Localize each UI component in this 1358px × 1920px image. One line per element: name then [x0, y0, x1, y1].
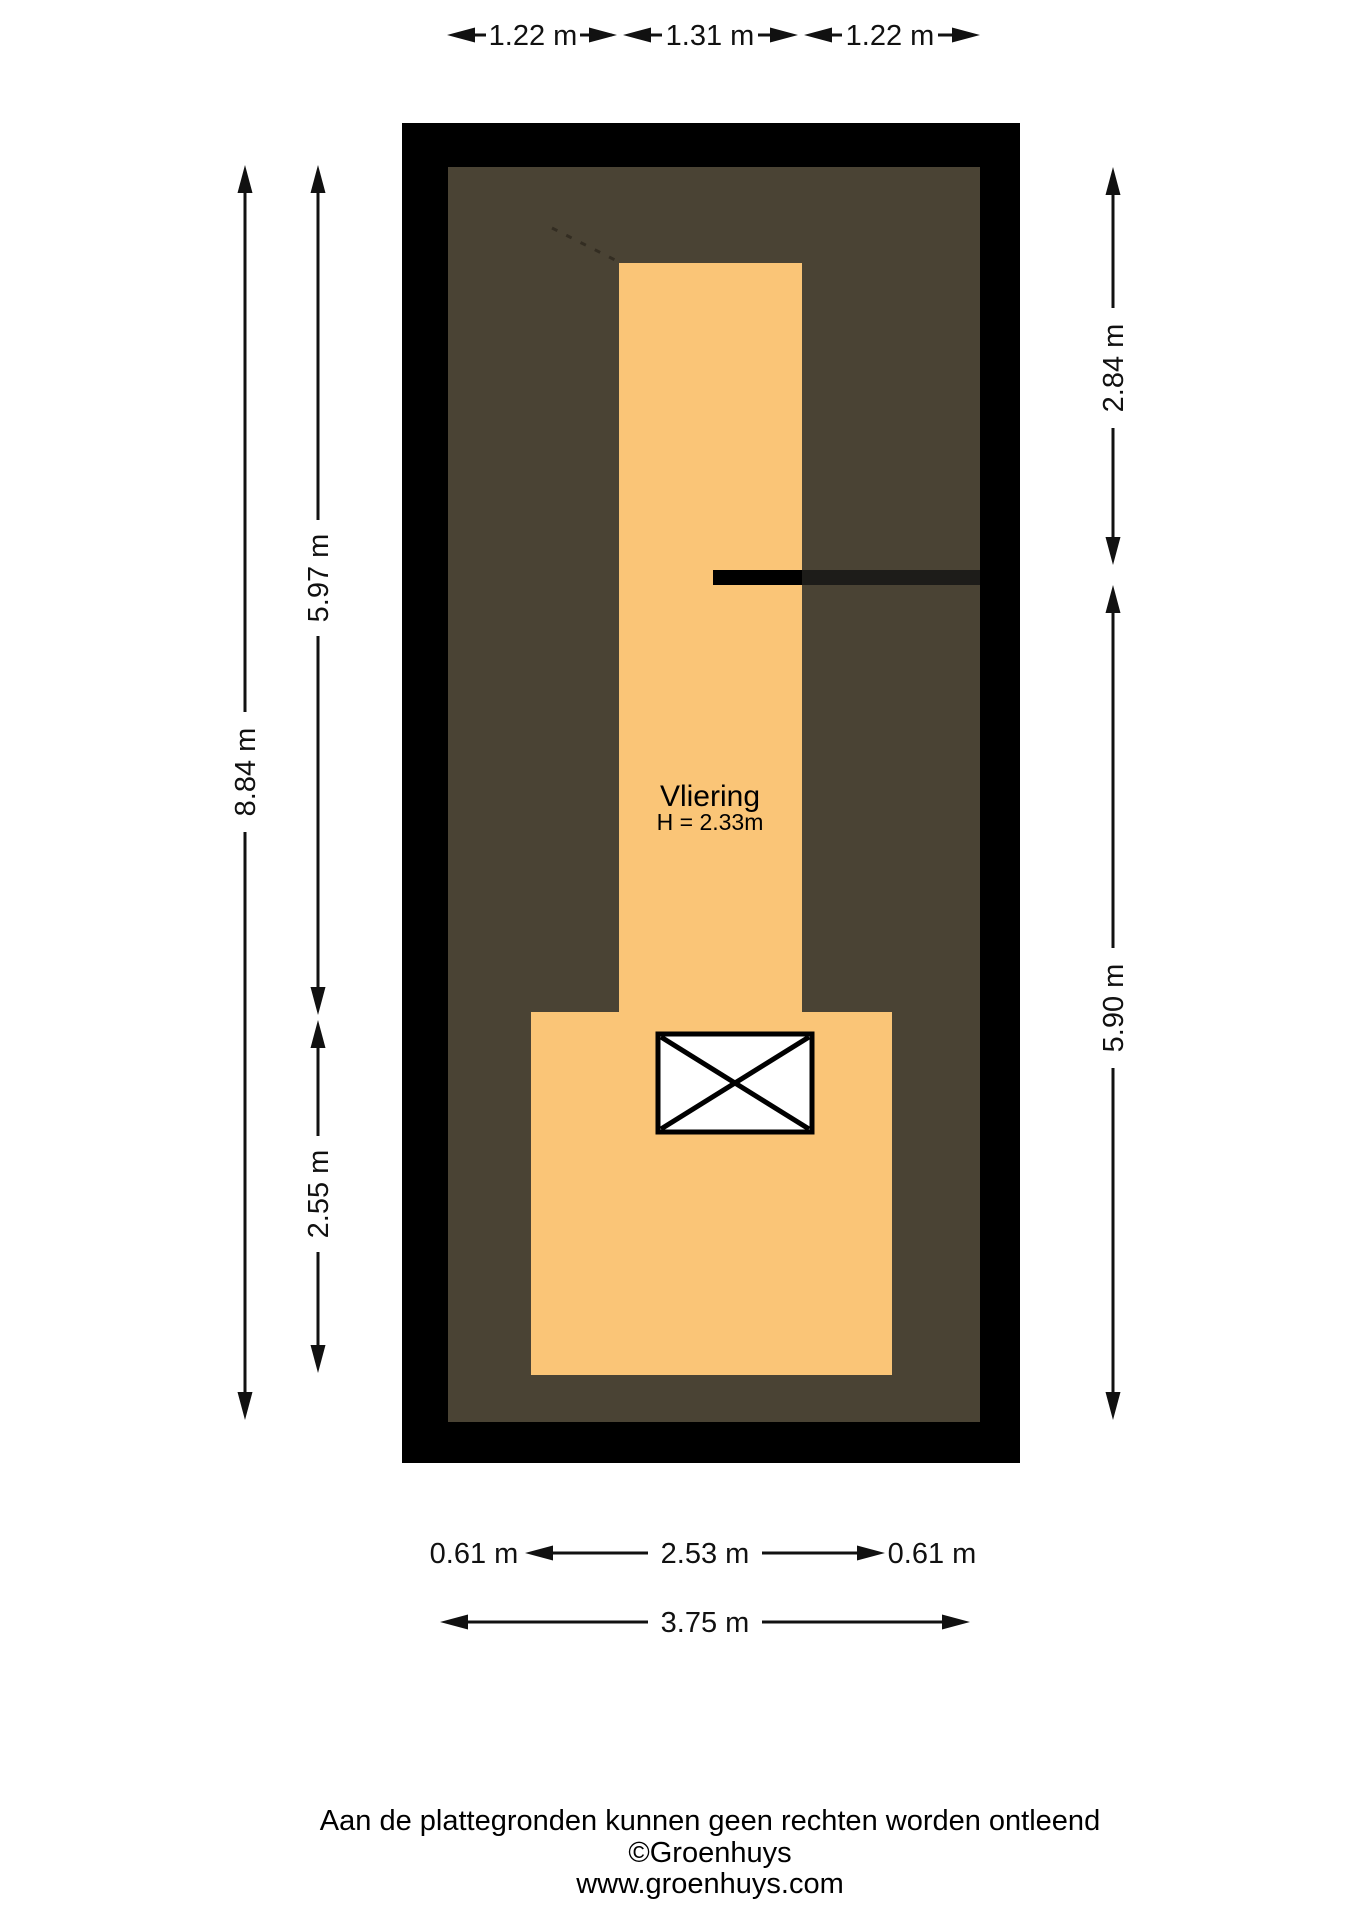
floor-plan: Vliering H = 2.33m: [402, 123, 1020, 1463]
dimension-label-right-upper: 2.84 m: [1098, 324, 1130, 413]
interior-wall-floor-segment: [713, 570, 802, 585]
dimension-label-left-total: 8.84 m: [230, 728, 262, 817]
dimension-label-top-1: 1.22 m: [489, 20, 578, 52]
dimension-bottom-total: 3.75 m: [440, 1607, 970, 1639]
arrow-right-icon: [589, 28, 617, 43]
dimension-label-bottom-middle: 2.53 m: [661, 1538, 750, 1570]
arrow-right-icon: [770, 28, 798, 43]
footer-website: www.groenhuys.com: [575, 1868, 844, 1900]
room-height-label: H = 2.33m: [657, 809, 764, 835]
dimension-left-total: 8.84 m: [230, 165, 262, 1420]
arrow-right-icon: [942, 1615, 970, 1630]
arrow-down-icon: [311, 987, 326, 1015]
dimension-label-left-upper: 5.97 m: [303, 534, 335, 623]
footer: Aan de plattegronden kunnen geen rechten…: [320, 1805, 1100, 1900]
floorplan-canvas: Vliering H = 2.33m 1.22 m 1.31 m 1.22 m …: [0, 0, 1358, 1920]
dimension-label-top-3: 1.22 m: [846, 20, 935, 52]
arrow-down-icon: [311, 1345, 326, 1373]
footer-disclaimer: Aan de plattegronden kunnen geen rechten…: [320, 1805, 1100, 1837]
interior-wall-roof-segment: [802, 570, 980, 585]
dimension-label-bottom-left: 0.61 m: [430, 1538, 519, 1570]
floorplan-page: Vliering H = 2.33m 1.22 m 1.31 m 1.22 m …: [0, 0, 1358, 1920]
dimension-label-top-2: 1.31 m: [666, 20, 755, 52]
dimension-left-upper: 5.97 m: [303, 165, 335, 1015]
arrow-right-icon: [952, 28, 980, 43]
dimension-left-lower: 2.55 m: [303, 1020, 335, 1373]
dimension-label-bottom-total: 3.75 m: [661, 1607, 750, 1639]
dimension-top-row: 1.22 m 1.31 m 1.22 m: [447, 20, 980, 52]
dimension-label-left-lower: 2.55 m: [303, 1150, 335, 1239]
arrow-down-icon: [1106, 537, 1121, 565]
arrow-down-icon: [1106, 1392, 1121, 1420]
arrow-down-icon: [238, 1392, 253, 1420]
dimension-label-right-lower: 5.90 m: [1098, 964, 1130, 1053]
dimension-bottom-row: 0.61 m 2.53 m 0.61 m: [430, 1538, 977, 1570]
footer-copyright: ©Groenhuys: [628, 1837, 791, 1869]
dimension-right-lower: 5.90 m: [1098, 585, 1130, 1420]
arrow-right-icon: [857, 1546, 885, 1561]
dimension-right-upper: 2.84 m: [1098, 167, 1130, 565]
stairs-hatch-icon: [658, 1034, 812, 1132]
dimension-label-bottom-right: 0.61 m: [888, 1538, 977, 1570]
